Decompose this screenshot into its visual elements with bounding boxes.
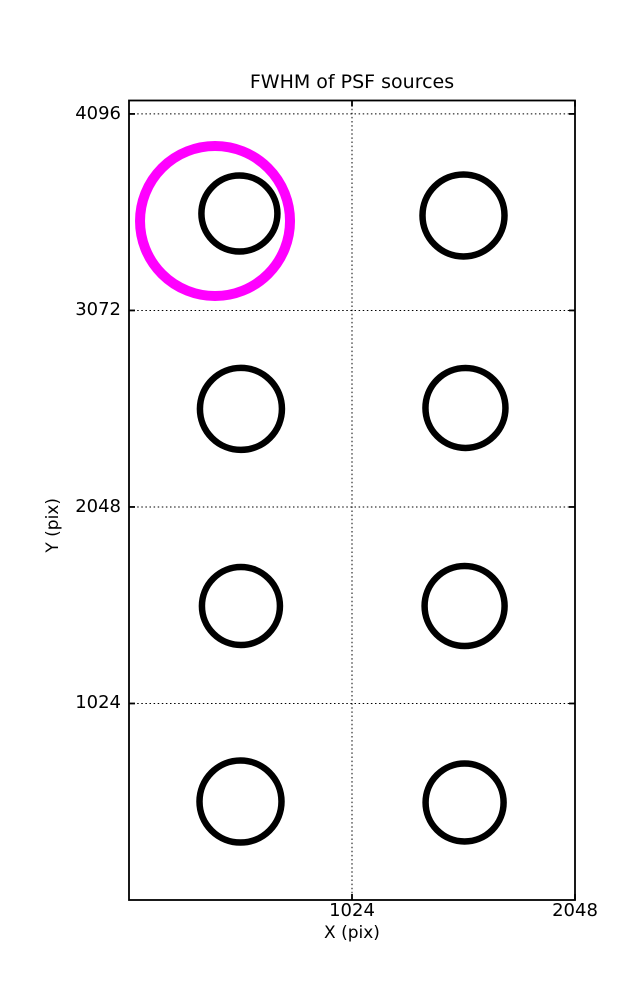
x-tick-label-1024: 1024 xyxy=(312,901,392,921)
psf_sources-marker xyxy=(423,174,505,256)
flagged_source-marker xyxy=(140,146,290,296)
psf_sources-marker xyxy=(426,764,504,842)
y-tick-label-4096: 4096 xyxy=(11,104,121,124)
y-tick-label-2048: 2048 xyxy=(11,497,121,517)
psf_sources-marker xyxy=(201,176,277,252)
psf_sources-marker xyxy=(425,566,505,646)
y-tick-label-1024: 1024 xyxy=(11,693,121,713)
psf_sources-marker xyxy=(200,368,282,450)
x-axis-label: X (pix) xyxy=(129,922,575,944)
y-tick-label-3072: 3072 xyxy=(11,300,121,320)
y-axis-label-text: Y (pix) xyxy=(42,498,64,553)
figure: FWHM of PSF sources 1024 2048 3072 4096 … xyxy=(0,0,637,1000)
x-tick-label-2048: 2048 xyxy=(535,901,615,921)
psf_sources-marker xyxy=(202,567,280,645)
psf_sources-marker xyxy=(425,368,505,448)
psf_sources-marker xyxy=(200,761,282,843)
chart-title: FWHM of PSF sources xyxy=(129,72,575,92)
